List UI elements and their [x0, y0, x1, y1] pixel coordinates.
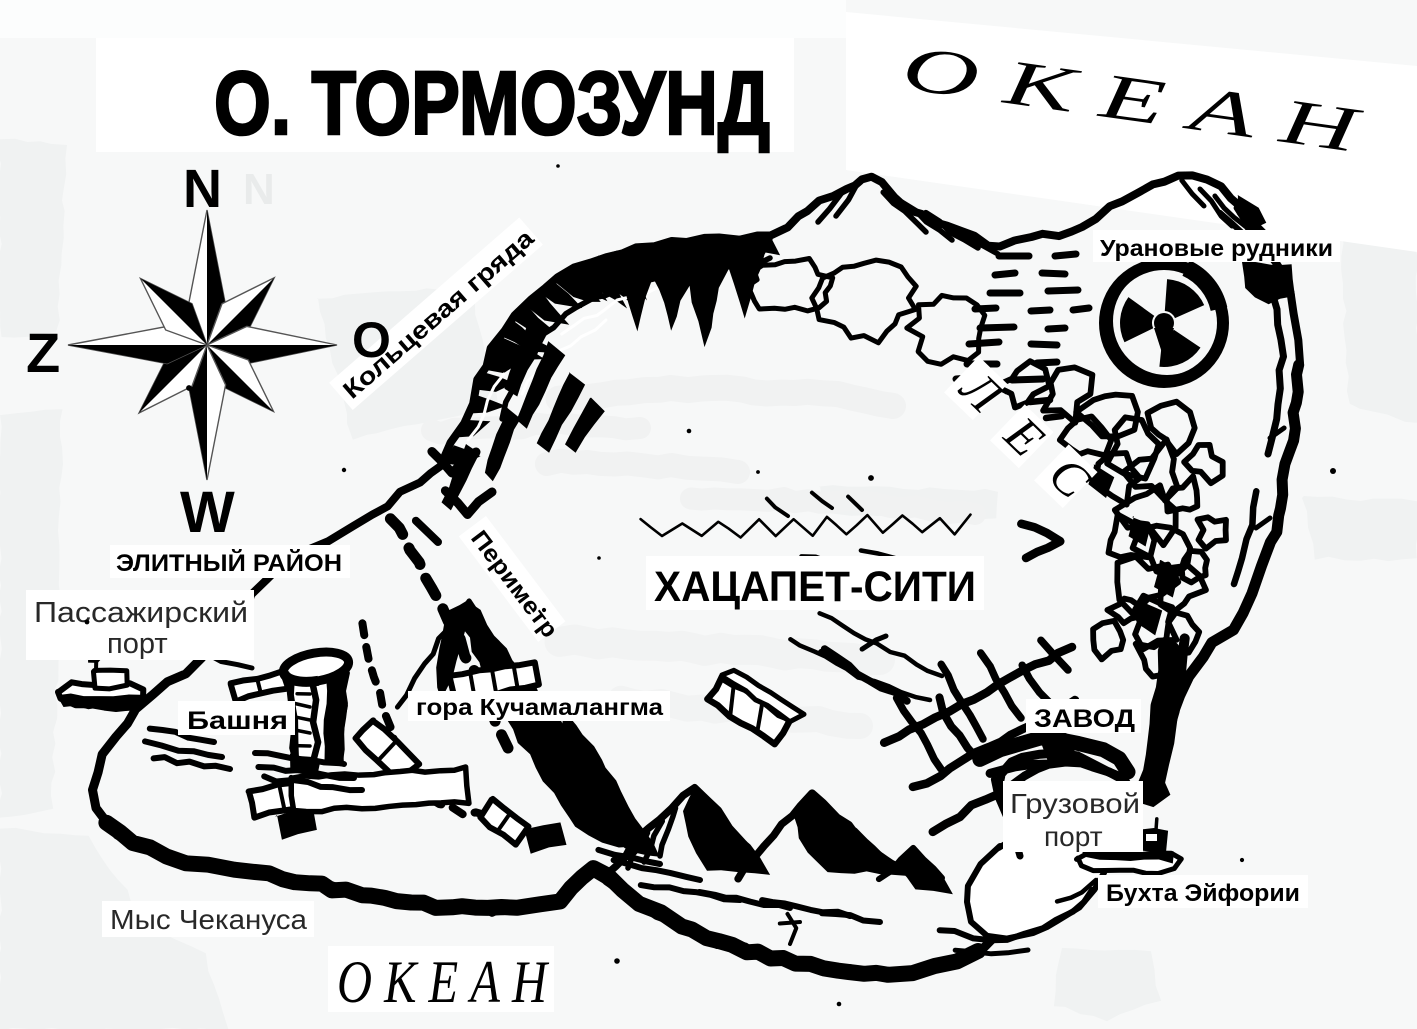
svg-text:Грузовой: Грузовой: [1010, 788, 1140, 819]
svg-text:N: N: [243, 165, 275, 214]
svg-text:Z: Z: [26, 321, 60, 384]
svg-text:О К Е А Н: О К Е А Н: [337, 949, 550, 1015]
svg-text:N: N: [183, 159, 222, 219]
svg-text:ХАЦАПЕТ-СИТИ: ХАЦАПЕТ-СИТИ: [654, 563, 976, 611]
svg-text:Пассажирский: Пассажирский: [34, 597, 248, 629]
svg-text:Башня: Башня: [187, 707, 288, 735]
svg-text:гора Кучамалангма: гора Кучамалангма: [416, 694, 663, 720]
svg-text:W: W: [180, 480, 235, 545]
svg-text:Бухта Эйфории: Бухта Эйфории: [1106, 880, 1300, 907]
svg-text:O: O: [352, 312, 391, 368]
svg-text:порт: порт: [107, 628, 168, 660]
svg-text:Урановые рудники: Урановые рудники: [1100, 235, 1333, 261]
svg-text:О. ТОРМОЗУНД: О. ТОРМОЗУНД: [214, 54, 770, 154]
svg-text:ЭЛИТНЫЙ РАЙОН: ЭЛИТНЫЙ РАЙОН: [116, 549, 342, 577]
svg-text:Мыс Чекануса: Мыс Чекануса: [110, 904, 307, 935]
svg-text:ЗАВОД: ЗАВОД: [1034, 705, 1135, 733]
svg-text:порт: порт: [1044, 821, 1103, 852]
